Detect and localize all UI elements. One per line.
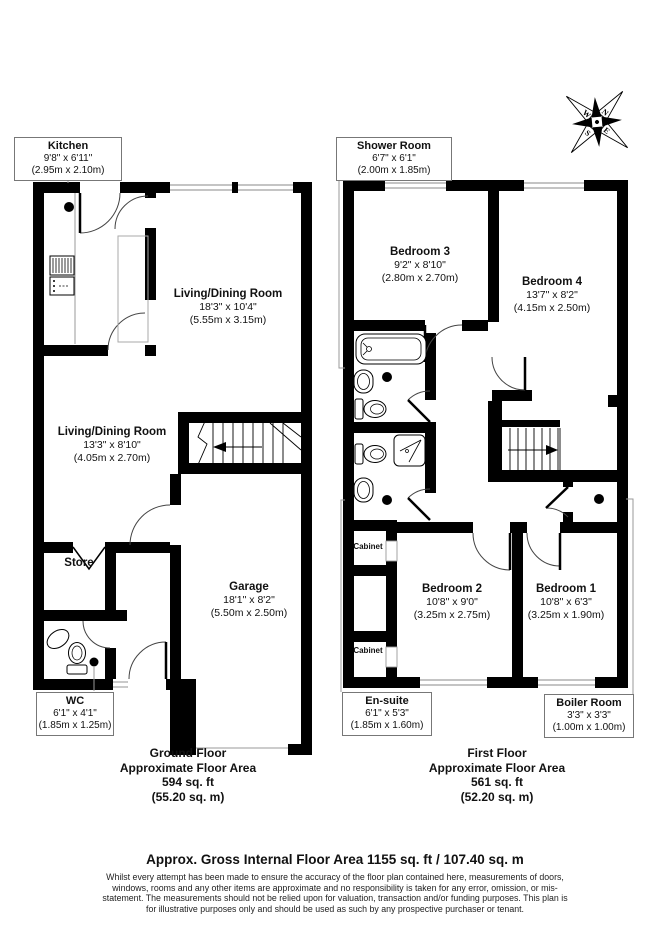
wc-dot-icon xyxy=(90,658,99,667)
ensuite-sink-icon xyxy=(354,478,373,502)
boiler-dot-icon xyxy=(594,494,604,504)
ensuite-label-box: En-suite 6'1" x 5'3" (1.85m x 1.60m) xyxy=(342,692,432,736)
floor-plan-page: N E S W Kitchen 9'8" x 6'11" (2.95m x 2.… xyxy=(0,0,670,948)
shower-room-metric: (2.00m x 1.85m) xyxy=(338,165,450,178)
bedroom1-imperial: 10'8" x 6'3" xyxy=(496,596,636,609)
shower-room-imperial: 6'7" x 6'1" xyxy=(338,153,450,166)
kitchen-label-box: Kitchen 9'8" x 6'11" (2.95m x 2.10m) xyxy=(14,137,122,181)
first-caption-line1: First Floor xyxy=(397,746,597,761)
garage-label: Garage 18'1" x 8'2" (5.50m x 2.50m) xyxy=(179,581,319,620)
kitchen-dot-icon xyxy=(64,202,74,212)
oven-icon xyxy=(50,277,74,295)
shower-room-dot-icon xyxy=(382,372,392,382)
bedroom4-name: Bedroom 4 xyxy=(482,276,622,289)
wc-sink-icon xyxy=(44,626,73,653)
living-lower-metric: (4.05m x 2.70m) xyxy=(42,452,182,465)
living-upper-metric: (5.55m x 3.15m) xyxy=(158,314,298,327)
bedroom4-imperial: 13'7" x 8'2" xyxy=(482,289,622,302)
ground-floor-stairs xyxy=(197,419,301,467)
stairs-up-arrow-ground xyxy=(213,442,226,452)
garage-metric: (5.50m x 2.50m) xyxy=(179,607,319,620)
garage-imperial: 18'1" x 8'2" xyxy=(179,594,319,607)
boiler-room-name: Boiler Room xyxy=(546,697,632,710)
store-label: Store xyxy=(49,557,109,570)
kitchen-name: Kitchen xyxy=(16,140,120,153)
shower-room-sink-icon xyxy=(354,370,373,393)
ground-caption-line4: (55.20 sq. m) xyxy=(88,790,288,805)
living-upper-name: Living/Dining Room xyxy=(158,288,298,301)
first-caption-line2: Approximate Floor Area xyxy=(397,761,597,776)
boiler-room-metric: (1.00m x 1.00m) xyxy=(546,722,632,735)
shower-room-toilet-icon xyxy=(355,399,386,419)
bath-icon xyxy=(356,334,426,364)
wc-metric: (1.85m x 1.25m) xyxy=(38,720,112,733)
wc-name: WC xyxy=(38,695,112,708)
shower-tray-icon xyxy=(394,435,425,466)
living-dining-upper-label: Living/Dining Room 18'3" x 10'4" (5.55m … xyxy=(158,288,298,327)
living-lower-name: Living/Dining Room xyxy=(42,426,182,439)
living-dining-lower-label: Living/Dining Room 13'3" x 8'10" (4.05m … xyxy=(42,426,182,465)
store-name: Store xyxy=(49,557,109,570)
cabinet-lower-name: Cabinet xyxy=(345,646,391,655)
stairs-up-arrow-first xyxy=(546,445,558,455)
kitchen-fixtures xyxy=(50,193,148,344)
wc-imperial: 6'1" x 4'1" xyxy=(38,708,112,721)
bedroom3-label: Bedroom 3 9'2" x 8'10" (2.80m x 2.70m) xyxy=(350,246,490,285)
bedroom4-label: Bedroom 4 13'7" x 8'2" (4.15m x 2.50m) xyxy=(482,276,622,315)
footer-disclaimer: Whilst every attempt has been made to en… xyxy=(98,872,572,914)
ensuite-name: En-suite xyxy=(344,695,430,708)
kitchen-imperial: 9'8" x 6'11" xyxy=(16,153,120,166)
shower-room-label-box: Shower Room 6'7" x 6'1" (2.00m x 1.85m) xyxy=(336,137,452,181)
bedroom1-label: Bedroom 1 10'8" x 6'3" (3.25m x 1.90m) xyxy=(496,583,636,622)
ensuite-fixtures xyxy=(354,435,425,505)
ground-caption-line2: Approximate Floor Area xyxy=(88,761,288,776)
shower-room-name: Shower Room xyxy=(338,140,450,153)
first-floor-caption: First Floor Approximate Floor Area 561 s… xyxy=(397,746,597,804)
cabinet-upper-name: Cabinet xyxy=(345,542,391,551)
ground-floor-caption: Ground Floor Approximate Floor Area 594 … xyxy=(88,746,288,804)
cabinet-lower-label: Cabinet xyxy=(345,646,391,655)
compass-icon: N E S W xyxy=(541,66,654,179)
bedroom1-metric: (3.25m x 1.90m) xyxy=(496,609,636,622)
boiler-room-label-box: Boiler Room 3'3" x 3'3" (1.00m x 1.00m) xyxy=(544,694,634,738)
kitchen-metric: (2.95m x 2.10m) xyxy=(16,165,120,178)
bedroom3-metric: (2.80m x 2.70m) xyxy=(350,272,490,285)
ensuite-dot-icon xyxy=(382,495,392,505)
bedroom3-imperial: 9'2" x 8'10" xyxy=(350,259,490,272)
ensuite-metric: (1.85m x 1.60m) xyxy=(344,720,430,733)
hob-icon xyxy=(50,256,74,275)
wc-label-box: WC 6'1" x 4'1" (1.85m x 1.25m) xyxy=(36,692,114,736)
first-caption-line3: 561 sq. ft xyxy=(397,775,597,790)
wc-toilet-icon xyxy=(67,643,87,675)
wc-fixtures xyxy=(44,626,99,674)
cabinet-upper-label: Cabinet xyxy=(345,542,391,551)
living-upper-imperial: 18'3" x 10'4" xyxy=(158,301,298,314)
bedroom1-name: Bedroom 1 xyxy=(496,583,636,596)
bedroom3-name: Bedroom 3 xyxy=(350,246,490,259)
bedroom4-metric: (4.15m x 2.50m) xyxy=(482,302,622,315)
boiler-room-imperial: 3'3" x 3'3" xyxy=(546,710,632,723)
ensuite-imperial: 6'1" x 5'3" xyxy=(344,708,430,721)
garage-name: Garage xyxy=(179,581,319,594)
ensuite-toilet-icon xyxy=(355,444,386,464)
footer-title: Approx. Gross Internal Floor Area 1155 s… xyxy=(35,852,635,867)
ground-caption-line3: 594 sq. ft xyxy=(88,775,288,790)
living-lower-imperial: 13'3" x 8'10" xyxy=(42,439,182,452)
first-caption-line4: (52.20 sq. m) xyxy=(397,790,597,805)
ground-caption-line1: Ground Floor xyxy=(88,746,288,761)
